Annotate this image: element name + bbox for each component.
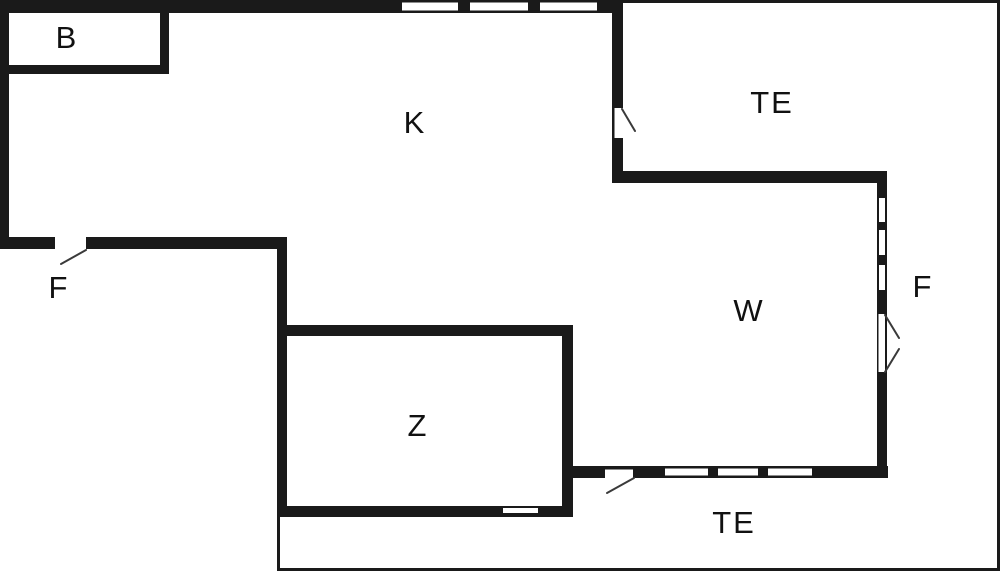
left-wall [0, 0, 9, 249]
door-swing-line [607, 478, 634, 493]
entry-wall [0, 237, 285, 249]
window [718, 469, 758, 476]
room-z-right-wall [562, 325, 573, 517]
terrace-top-bottom-wall [612, 171, 887, 183]
door-swing-line [885, 349, 899, 372]
room-label-te-top: TE [750, 85, 794, 120]
terrace-boundary-bottom-line [277, 568, 1000, 571]
terrace-boundary-left-line [277, 517, 280, 571]
room-label-f-right: F [913, 269, 934, 304]
room-label-f-left: F [49, 270, 70, 305]
room-b-bottom-wall [0, 65, 169, 74]
door-opening [605, 470, 633, 479]
window [540, 3, 597, 11]
door-opening [879, 314, 886, 372]
room-label-w: W [733, 293, 764, 328]
floorplan: B K TE F W F Z TE [0, 0, 1000, 574]
window [879, 230, 885, 255]
room-labels: B K TE F W F Z TE [49, 20, 934, 540]
floorplan-drawing: B K TE F W F Z TE [0, 0, 1000, 574]
room-label-b: B [56, 20, 79, 55]
walls [0, 0, 888, 517]
terrace-boundary [277, 0, 1000, 571]
door-swing-line [622, 109, 635, 131]
doors [55, 108, 899, 493]
window [665, 469, 708, 476]
room-label-k: K [404, 105, 427, 140]
window [402, 3, 458, 11]
windows [402, 3, 885, 514]
mid-left-wall [277, 237, 287, 517]
door-swing-line [61, 250, 86, 264]
window [768, 469, 812, 476]
window [879, 198, 885, 222]
window [470, 3, 528, 11]
door-opening [55, 237, 86, 249]
window [879, 265, 885, 290]
room-label-z: Z [408, 408, 429, 443]
door-opening [615, 108, 624, 138]
room-label-te-bottom: TE [712, 505, 756, 540]
door-swing-line [885, 315, 899, 338]
window [503, 508, 538, 513]
terrace-top-left-wall [612, 0, 623, 183]
top-wall [0, 0, 623, 13]
room-z-top-wall [277, 325, 573, 336]
room-b-right-wall [160, 0, 169, 74]
terrace-boundary-top-line [623, 0, 1000, 3]
